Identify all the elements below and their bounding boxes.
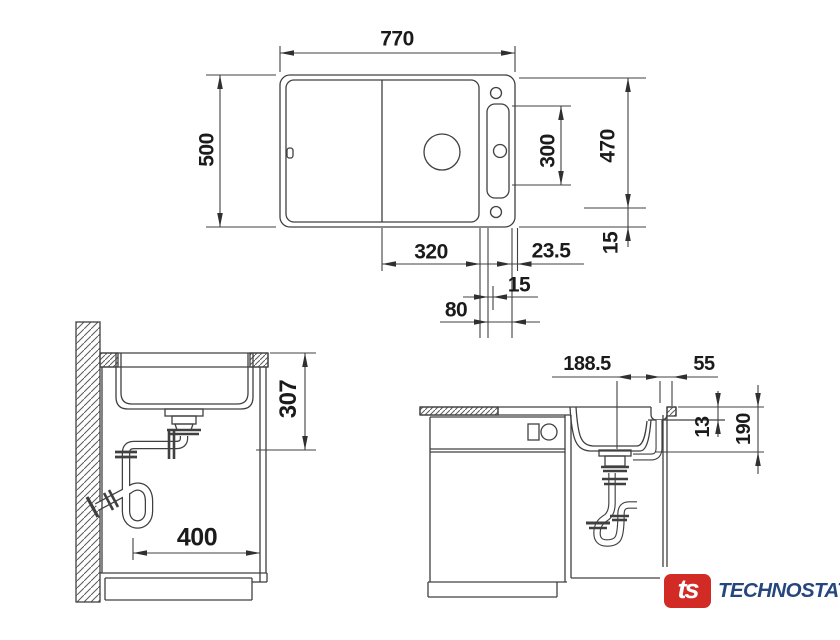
overflow-slot [287,148,293,158]
front-section-drawing [420,374,764,597]
wall-hatch [76,322,100,602]
drain-strainer-front [599,450,631,471]
dishwasher-control-dial [541,424,557,440]
bowl-outer-wall [116,353,253,409]
front-bowl-outer [570,407,651,451]
dim-overflow-offset: 55 [693,354,714,374]
counter-hatch-left [100,353,118,367]
dim-side-margin: 15 [601,232,622,254]
counter-hatch-front-right [667,407,676,416]
dim-drain-position: 188.5 [563,354,611,374]
dim-cabinet-width: 400 [177,526,217,551]
front-bowl-inner [576,407,647,446]
sink-outline [280,75,515,227]
drain-hole [424,134,460,170]
dim-hole-offset: 15 [508,275,530,296]
tap-ledge-recess [487,104,509,198]
brand-logo: ts TECHNOSTATUS [664,574,840,608]
top-view-arrowheads [217,50,631,325]
logo-brand-text: TECHNOSTATUS [718,579,840,603]
technical-drawing-canvas [0,0,840,640]
dim-rim-height: 13 [693,416,713,437]
top-view-drawing [206,46,646,338]
siphon-plumbing-front [586,473,637,543]
tap-hole-middle [494,145,507,158]
dim-drain-offset: 80 [445,300,467,321]
top-view-dimension-lines [206,46,646,338]
dim-bowl-width: 320 [414,242,448,263]
tap-hole-top [491,88,502,99]
dim-edge-offset: 23.5 [532,241,571,262]
drain-strainer-side [165,409,203,434]
dim-overall-width: 770 [380,29,414,50]
tap-hole-bottom [491,207,502,218]
dishwasher-control-slot [528,424,539,440]
side-section-drawing [76,322,316,602]
dim-holes-span: 300 [538,134,559,168]
sink-installation-drawing: 770 500 470 300 15 320 23.5 15 80 307 40… [0,0,840,640]
dim-bowl-depth: 190 [734,413,754,445]
logo-badge-icon: ts [664,574,711,608]
dim-cutout-depth: 470 [598,129,619,163]
bowl-inner-wall [121,353,248,404]
dim-overall-depth: 500 [197,133,218,167]
dim-mounting-depth: 307 [277,380,301,419]
counter-hatch-front [420,407,498,415]
